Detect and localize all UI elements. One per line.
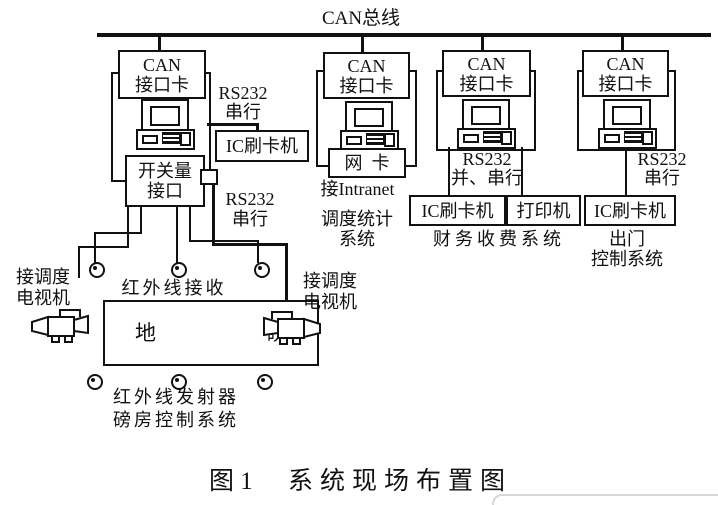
can-card-2-line2: 接口卡	[340, 76, 394, 96]
wire-fan1-v1	[127, 203, 129, 248]
figure-canvas: CAN总线 CAN 接口卡 CAN 接口卡 CAN 接口卡 CAN 接口卡	[0, 0, 718, 505]
ir-transmitter-dot	[257, 374, 273, 390]
ic-reader-4-label: IC刷卡机	[594, 201, 666, 221]
wire-b4	[625, 147, 627, 195]
switch-io-line2: 接口	[147, 181, 183, 201]
ir-receiver-label: 红外线接收	[116, 278, 232, 298]
camera-left-icon	[28, 306, 94, 346]
background-panel-edge	[492, 494, 718, 505]
ir-transmitter-label: 红外线发射器	[106, 387, 246, 407]
computer-monitor-icon	[141, 99, 189, 133]
figure-caption-number: 图 1	[209, 461, 253, 497]
wire-b1-rs232-v2	[285, 243, 288, 303]
wire-fan1-h	[78, 246, 129, 248]
exit-system-line2: 控制系统	[591, 249, 663, 269]
net-card-label: 网 卡	[345, 153, 390, 173]
rs232-b3-line2: 并、串行	[447, 168, 527, 188]
dispatch-system-line2: 系统	[314, 229, 400, 249]
dispatch-system-line1: 调度统计	[314, 209, 400, 229]
rs232-b4-line2: 串行	[630, 168, 694, 188]
ir-receiver-dot	[254, 262, 270, 278]
wire-fan4-h	[189, 240, 259, 242]
can-card-box-4: CAN 接口卡	[582, 50, 669, 97]
printer-label: 打印机	[517, 201, 571, 221]
weigh-room-system-label: 磅房控制系统	[106, 410, 246, 430]
can-bus-label: CAN总线	[306, 9, 416, 29]
can-card-4-line2: 接口卡	[599, 74, 653, 94]
weighbridge-char1: 地	[135, 323, 156, 343]
wire-b1-rs232-v1	[212, 178, 215, 246]
wire-fan1-v2	[78, 246, 80, 278]
camera-right-icon	[258, 308, 324, 348]
can-card-1-line1: CAN	[143, 55, 181, 75]
ic-reader-1-label: IC刷卡机	[226, 136, 298, 156]
switch-io-port-stub	[200, 169, 218, 185]
ir-transmitter-dot	[87, 374, 103, 390]
ic-reader-box-4: IC刷卡机	[584, 195, 676, 226]
can-card-box-1: CAN 接口卡	[118, 50, 206, 99]
wire-fan4-v2	[257, 240, 259, 263]
wire-fan2-v2	[94, 232, 96, 264]
computer-base-icon	[598, 128, 657, 149]
rs232-b3-line1: RS232	[455, 149, 519, 169]
net-card-box: 网 卡	[328, 148, 406, 178]
rs232-bottom-line2: 串行	[218, 209, 282, 229]
exit-system-line1: 出门	[591, 229, 663, 249]
computer-base-icon	[457, 128, 516, 149]
switch-io-line1: 开关量	[138, 161, 192, 181]
can-card-2-line1: CAN	[347, 56, 385, 76]
rs232-b4-line1: RS232	[630, 149, 694, 169]
can-card-box-2: CAN 接口卡	[323, 52, 410, 99]
wire-fan4-v1	[189, 203, 191, 242]
rs232-top-line2: 串行	[211, 102, 275, 122]
bus-stub-1	[158, 36, 161, 51]
bus-stub-3	[481, 36, 484, 51]
can-card-box-3: CAN 接口卡	[442, 50, 531, 97]
wire-b1-rs232-h1	[212, 243, 288, 246]
rs232-bottom-line1: RS232	[218, 189, 282, 209]
tv-right-line1: 接调度	[299, 271, 361, 291]
can-card-1-line2: 接口卡	[135, 75, 189, 95]
ic-reader-box-1: IC刷卡机	[215, 130, 309, 162]
rs232-top-line1: RS232	[211, 83, 275, 103]
figure-caption-title: 系统现场布置图	[288, 461, 512, 497]
printer-box: 打印机	[506, 195, 581, 226]
can-bus-line	[97, 33, 711, 37]
bus-stub-2	[361, 36, 364, 53]
tv-left-line2: 电视机	[12, 288, 74, 308]
can-card-3-line2: 接口卡	[460, 74, 514, 94]
ic-reader-box-3: IC刷卡机	[409, 195, 506, 226]
ir-receiver-dot	[171, 262, 187, 278]
wire-fan3-v	[176, 203, 178, 263]
ir-receiver-dot	[89, 262, 105, 278]
tv-left-line1: 接调度	[12, 267, 74, 287]
computer-base-icon	[136, 129, 195, 150]
switch-io-box: 开关量 接口	[125, 155, 205, 207]
wire-b1-ic-h	[207, 123, 259, 126]
can-card-4-line1: CAN	[606, 54, 644, 74]
can-card-3-line1: CAN	[467, 54, 505, 74]
ic-reader-3-label: IC刷卡机	[422, 201, 494, 221]
wire-fan2-h	[94, 232, 142, 234]
wire-fan2-v1	[140, 203, 142, 234]
intranet-label: 接Intranet	[310, 179, 405, 199]
bus-stub-4	[621, 36, 624, 51]
finance-system-label: 财务收费系统	[428, 229, 570, 249]
